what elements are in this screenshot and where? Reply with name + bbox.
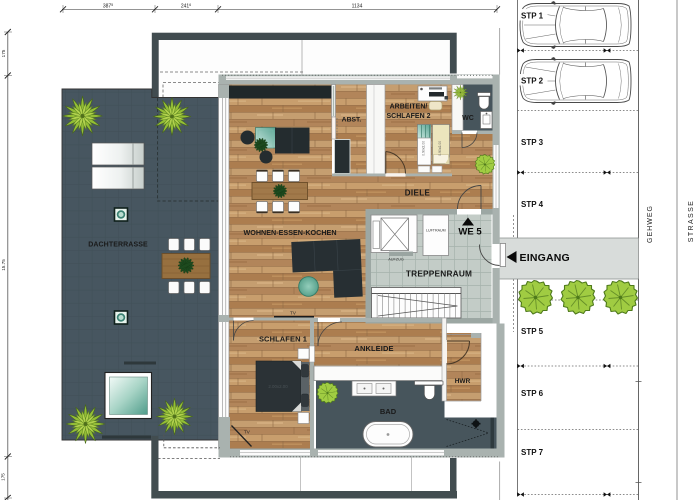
- svg-text:ANKLEIDE: ANKLEIDE: [354, 344, 393, 353]
- svg-text:STP 3: STP 3: [521, 138, 544, 147]
- svg-text:AUFZUG: AUFZUG: [388, 258, 404, 262]
- svg-text:LUFTRAUM: LUFTRAUM: [426, 229, 446, 233]
- svg-text:WE 5: WE 5: [458, 227, 482, 238]
- svg-text:SCHLAFEN 1: SCHLAFEN 1: [259, 335, 307, 344]
- svg-text:DIELE: DIELE: [405, 189, 431, 198]
- svg-text:SCHLAFEN 2: SCHLAFEN 2: [387, 113, 431, 120]
- svg-text:TV: TV: [290, 311, 296, 316]
- svg-text:ARBEITEN/: ARBEITEN/: [390, 104, 428, 111]
- svg-text:STP 6: STP 6: [521, 389, 544, 398]
- svg-text:15.75: 15.75: [1, 259, 6, 271]
- svg-text:BAD: BAD: [380, 407, 397, 416]
- svg-text:STRASSE: STRASSE: [688, 200, 695, 242]
- svg-text:STP 2: STP 2: [521, 77, 544, 86]
- svg-text:175: 175: [1, 49, 6, 57]
- svg-text:0.90x2.00: 0.90x2.00: [421, 141, 425, 156]
- svg-text:STP 5: STP 5: [521, 327, 544, 336]
- svg-text:TREPPENRAUM: TREPPENRAUM: [406, 269, 472, 279]
- svg-text:WOHNEN-ESSEN-KOCHEN: WOHNEN-ESSEN-KOCHEN: [243, 228, 336, 237]
- svg-text:175: 175: [1, 473, 6, 481]
- svg-text:HWR: HWR: [455, 378, 471, 385]
- svg-text:STP 7: STP 7: [521, 448, 544, 457]
- svg-text:EINGANG: EINGANG: [520, 252, 570, 264]
- svg-text:1134: 1134: [352, 3, 363, 9]
- svg-text:ABST.: ABST.: [342, 117, 362, 124]
- svg-text:DACHTERRASSE: DACHTERRASSE: [88, 242, 148, 249]
- svg-text:STP 4: STP 4: [521, 200, 544, 209]
- svg-text:GEHWEG: GEHWEG: [647, 205, 654, 243]
- svg-text:WC: WC: [462, 115, 474, 122]
- svg-text:0.90x2.00: 0.90x2.00: [438, 141, 442, 156]
- svg-text:TV: TV: [244, 430, 250, 435]
- svg-text:STP 1: STP 1: [521, 12, 544, 21]
- svg-text:2.00x2.00: 2.00x2.00: [268, 384, 288, 389]
